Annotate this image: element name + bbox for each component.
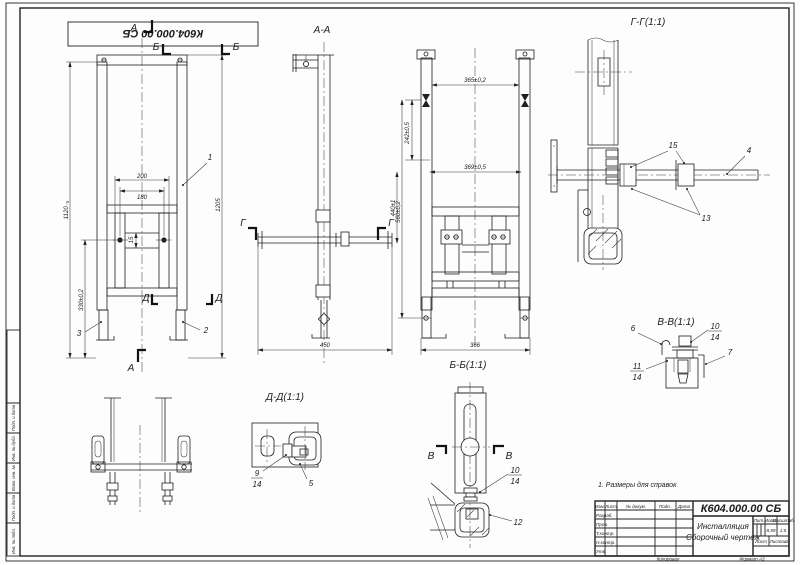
front-left-rail xyxy=(97,62,107,310)
callout-3: 3 xyxy=(77,329,82,338)
section-label-d-left: Д xyxy=(141,293,149,304)
tb-col-dokum: № докум. xyxy=(626,504,646,509)
tb-row-prov: Пров. xyxy=(596,522,608,527)
callout-11: 11 xyxy=(633,362,641,371)
view-bottom xyxy=(91,398,192,512)
view-section-vv: В-В(1:1) 6 10 14 7 11 14 xyxy=(630,317,733,388)
dim-369: 369±0,5 xyxy=(464,165,486,171)
section-mark-b-left xyxy=(163,44,171,54)
post-connector xyxy=(316,210,330,222)
callout-6: 6 xyxy=(631,324,636,333)
bb-right-leg xyxy=(520,297,529,338)
tb-mass-value: 8,59 xyxy=(767,528,776,533)
title-block: Изм. Лист № докум. Подп. Дата Разраб. Пр… xyxy=(595,501,794,562)
callout-13: 13 xyxy=(702,214,711,223)
view-section-aa: А-А Г Г 450 xyxy=(240,25,397,365)
strip-label: Инв. № подл. xyxy=(11,528,16,554)
tb-col-list: Лист xyxy=(604,504,617,509)
bb-right-strap xyxy=(492,216,506,274)
tb-name-line1: Инсталляция xyxy=(697,522,749,531)
bolt-head xyxy=(679,336,691,346)
section-label-v-left: В xyxy=(428,451,435,462)
rail-lug xyxy=(521,94,529,107)
callout-4: 4 xyxy=(747,146,752,155)
callout-10: 10 xyxy=(711,322,720,331)
strip-label: Подп. и дата xyxy=(11,404,16,431)
rod-collar xyxy=(341,232,349,246)
dim-330: 330±0,2 xyxy=(79,289,85,311)
callout-14: 14 xyxy=(253,480,262,489)
tb-sheets-value: 1 xyxy=(786,539,789,544)
tb-scale-value: 1:5 xyxy=(780,528,787,533)
callout-7: 7 xyxy=(728,348,733,357)
drawing-sheet: Подп. и дата Инв. № дубл. Взам. инв. № П… xyxy=(0,0,800,565)
view-gg-title: Г-Г(1:1) xyxy=(631,17,666,28)
bb-mid-bar xyxy=(432,207,519,216)
bb-left-strap xyxy=(445,216,459,274)
callout-14a: 14 xyxy=(711,333,720,342)
callout-9: 9 xyxy=(255,469,260,478)
section-label-g-right: Г xyxy=(388,218,395,229)
section-mark-b-right xyxy=(222,44,230,54)
tb-col-izm: Изм. xyxy=(595,504,605,509)
tb-col-data: Дата xyxy=(677,504,691,509)
section-mark-v-right xyxy=(494,446,504,454)
section-label-a-top: А xyxy=(130,23,138,34)
callout-14b: 14 xyxy=(633,373,642,382)
strip-label: Инв. № дубл. xyxy=(11,435,16,461)
dim-1205: 1205 xyxy=(216,198,222,212)
hook-part xyxy=(662,341,670,355)
wall-flange xyxy=(551,140,557,192)
tb-sheets-label: Листов xyxy=(769,539,787,544)
strip-label: Взам. инв. № xyxy=(11,465,16,491)
front-right-rail xyxy=(177,62,187,310)
section-mark-v-left xyxy=(436,446,446,454)
view-vv-title: В-В(1:1) xyxy=(657,317,694,328)
left-margin-strips: Подп. и дата Инв. № дубл. Взам. инв. № П… xyxy=(7,330,20,556)
dim-180: 180 xyxy=(137,195,148,201)
tb-kopiroval: Копировал xyxy=(657,557,680,562)
rail-lug xyxy=(422,94,430,107)
callout-2: 2 xyxy=(203,326,209,335)
dim-242: 242±0,5 xyxy=(405,122,411,145)
section-label-b-right: Б xyxy=(233,42,240,53)
post-connector xyxy=(316,285,330,297)
tb-doc-number: К604.000.00 СБ xyxy=(701,503,782,515)
callout-15: 15 xyxy=(669,141,678,150)
view-foot-detail: В В 10 14 12 xyxy=(428,382,523,548)
foot-plate-right xyxy=(178,436,190,464)
section-label-a-bottom: А xyxy=(127,363,135,374)
view-section-bb: Б-Б(1:1) 365±0,2 369±0,5 242±0,5 560±0,2 xyxy=(396,48,534,371)
tb-row-nkontr: Н.контр. xyxy=(596,540,615,545)
front-right-leg xyxy=(176,310,185,340)
dim-366: 366 xyxy=(470,343,481,349)
tb-row-tkontr: Т.контр. xyxy=(596,531,615,536)
dim-15: 15 xyxy=(129,236,135,243)
rod-collar-1 xyxy=(620,164,636,186)
drawing-canvas: Подп. и дата Инв. № дубл. Взам. инв. № П… xyxy=(0,0,800,565)
strip-label: Подп. и дата xyxy=(11,494,16,521)
dim-1120: 1120₋₅ xyxy=(64,200,70,219)
callout-14: 14 xyxy=(511,477,520,486)
section-mark-g-right xyxy=(378,228,386,240)
section-label-d-right: Д xyxy=(214,293,222,304)
callout-1: 1 xyxy=(208,153,212,162)
bb-bottom-bar xyxy=(432,288,519,297)
rod-collar-2 xyxy=(678,164,694,186)
tb-scale-header: Масштаб xyxy=(772,518,794,523)
view-aa-title: А-А xyxy=(313,25,331,36)
tb-lit-header: Лит. xyxy=(753,518,765,523)
view-front: 15 200 180 1120₋₅ 330±0,2 1205 1 2 xyxy=(64,20,240,374)
tb-name-line2: Сборочный чертеж xyxy=(686,533,760,542)
view-section-dd: Д-Д(1:1) 9 14 5 xyxy=(251,392,321,489)
view-dd-title: Д-Д(1:1) xyxy=(265,392,304,403)
dim-200: 200 xyxy=(136,174,148,180)
callout-12: 12 xyxy=(514,518,523,527)
callout-5: 5 xyxy=(309,479,314,488)
reference-note: 1. Размеры для справок xyxy=(598,481,677,489)
section-label-v-right: В xyxy=(506,451,513,462)
sheet-frame xyxy=(6,3,794,561)
section-mark-d-left xyxy=(152,294,158,304)
dim-560: 560±0,2 xyxy=(396,201,402,223)
tb-col-podp: Подп. xyxy=(659,504,671,509)
flange-part xyxy=(698,355,704,378)
dim-365: 365±0,2 xyxy=(464,78,486,84)
foot-plate-left xyxy=(92,436,104,464)
tb-row-utv: Утв. xyxy=(596,549,606,554)
dim-450: 450 xyxy=(320,343,331,349)
section-label-b-left: Б xyxy=(153,42,160,53)
tb-row-razrab: Разраб. xyxy=(596,513,613,518)
section-mark-d-right xyxy=(206,294,212,304)
view-bb-title: Б-Б(1:1) xyxy=(450,360,487,371)
corner-stamp: К604.000.00 СБ xyxy=(68,22,258,46)
callout-10: 10 xyxy=(511,466,520,475)
front-left-leg xyxy=(99,310,108,340)
tb-sheet-label: Лист xyxy=(754,539,767,544)
view-section-gg: Г-Г(1:1) 15 xyxy=(548,17,770,270)
section-label-g-left: Г xyxy=(240,218,247,229)
tb-format: Формат А3 xyxy=(739,557,765,562)
bb-left-leg xyxy=(422,297,431,338)
section-mark-g-left xyxy=(248,228,256,240)
